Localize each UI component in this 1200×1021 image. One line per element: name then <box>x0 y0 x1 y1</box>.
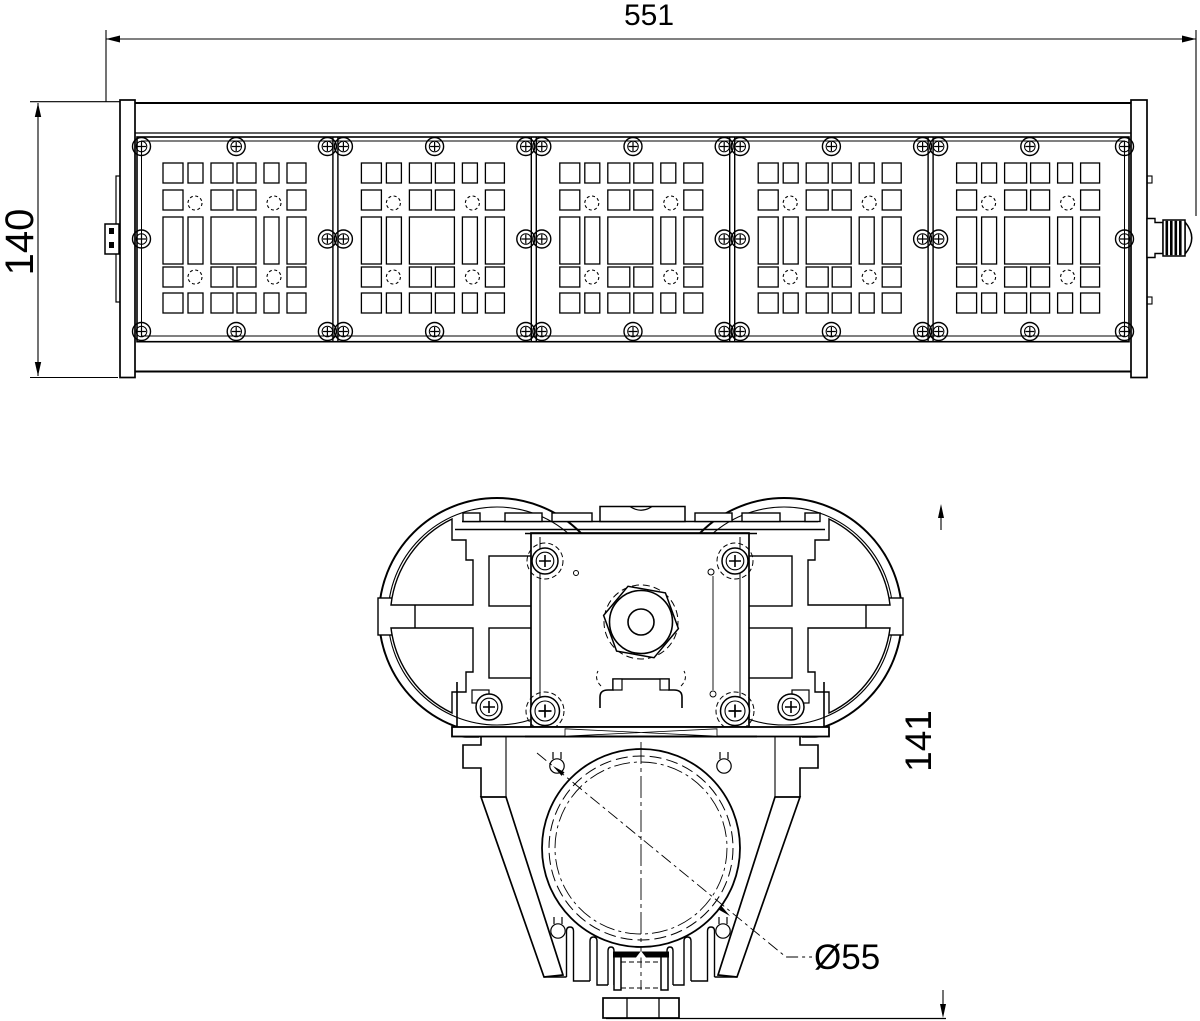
dimension-diameter: Ø55 <box>537 753 880 977</box>
gear-frame <box>525 533 757 727</box>
dimension-height: 140 <box>0 102 120 378</box>
diameter-dim-label: Ø55 <box>814 938 880 977</box>
section-height-dim-label: 141 <box>898 710 939 772</box>
length-dim-label: 551 <box>624 0 674 32</box>
frame-screws <box>133 138 1134 341</box>
hex-bolt <box>603 998 679 1018</box>
cable-gland <box>1147 219 1192 258</box>
front-view <box>105 100 1192 378</box>
height-dim-label: 140 <box>0 209 42 276</box>
luminaire-drawing: 551 140 <box>0 0 1200 1021</box>
module-separators <box>333 137 933 342</box>
central-boss <box>604 585 679 659</box>
bracket-arm-left <box>481 797 614 985</box>
bracket-arm-right <box>667 797 800 985</box>
glass-band <box>452 727 829 737</box>
technical-drawing-sheet: 551 140 <box>0 0 1200 1021</box>
lens-modules <box>163 163 1100 313</box>
end-connector <box>105 176 121 302</box>
